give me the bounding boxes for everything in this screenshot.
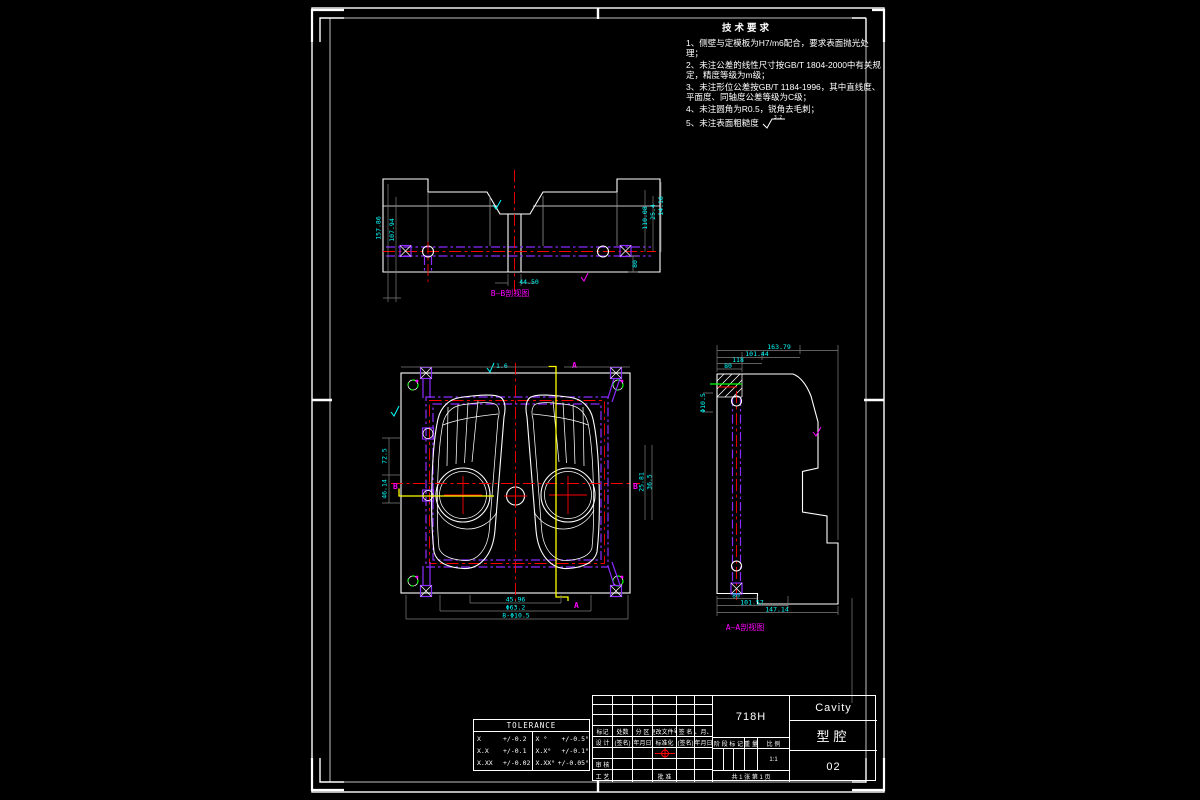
roughness-mark-icon [487, 363, 494, 372]
part-name-cn: 型腔 [790, 721, 877, 751]
dim-text: 14.16 [657, 196, 665, 216]
side-view-label: A—A剖视图 [726, 622, 764, 632]
section-mark: A [572, 361, 577, 370]
revision-header: 分 区 [633, 726, 653, 737]
dim-text: 101.44 [745, 350, 769, 358]
pipe-fitting-icon [423, 428, 434, 439]
dim-text: 157.86 [375, 216, 383, 240]
dim-text: 80 [631, 260, 639, 268]
section-view: 157.86 107.94 110.08 25.4 14.16 80 44.50… [375, 170, 666, 302]
side-view: 163.79 101.44 118 80 Φ10.5 80 101.57 147… [699, 343, 838, 632]
dim-text: 25.4 [649, 204, 657, 220]
stage-label: 阶 段 标 记 [713, 738, 745, 749]
table-row: X.XX+/-0.02 [477, 759, 532, 767]
scale-value: 1:1 [758, 749, 790, 771]
process-label: 工 艺 [593, 770, 613, 782]
tolerance-linear-column: X+/-0.2 X.X+/-0.1 X.XX+/-0.02 [474, 732, 532, 770]
plan-view: A A B B 1.6 72.5 46.14 45.96 Φ63.2 8-Φ10… [381, 361, 853, 703]
revision-header: 签 名 [677, 726, 695, 737]
revision-header: 更改文件号 [653, 726, 677, 737]
tolerance-angular-column: X °+/-0.5° X.X°+/-0.1° X.XX°+/-0.05° [532, 732, 590, 770]
part-name-en: Cavity [790, 696, 877, 721]
svg-text:3.2: 3.2 [774, 115, 782, 121]
roughness-mark-icon [813, 427, 821, 436]
revision-header: 处数 [613, 726, 633, 737]
tech-note: 2、未注公差的线性尺寸按GB/T 1804-2000中有关规定，精度等级为m级； [686, 60, 882, 81]
date-cell: (年月日) [695, 737, 713, 748]
tech-note: 3、未注形位公差按GB/T 1184-1996，其中直线度、平面度、同轴度公差等… [686, 82, 882, 103]
dim-text: Φ10.5 [699, 393, 707, 413]
dim-text: 44.50 [519, 278, 539, 286]
dim-text: Φ63.2 [506, 604, 526, 612]
roughness-mark-icon [581, 273, 588, 281]
hatch-block [717, 374, 742, 397]
table-row: X.X°+/-0.1° [536, 747, 590, 755]
weight-label: 重 量 [745, 738, 758, 749]
checker-label: 审 核 [593, 759, 613, 770]
tolerance-table: TOLERANCE X+/-0.2 X.X+/-0.1 X.XX+/-0.02 … [473, 719, 590, 771]
dim-text: 8-Φ10.5 [502, 612, 529, 620]
title-block: 标记 处数 分 区 更改文件号 签 名 年、月、日 设 计 (签名) (年月日)… [592, 695, 876, 781]
tech-note: 1、侧壁与定模板为H7/m6配合，要求表面抛光处理； [686, 38, 882, 59]
tolerance-table-title: TOLERANCE [474, 720, 589, 732]
sheet-info: 共 1 张 第 1 页 [713, 771, 790, 782]
surface-roughness-icon: 3.2 [761, 115, 787, 129]
revision-header: 标记 [593, 726, 613, 737]
projection-symbol-icon [654, 748, 676, 759]
drawing-number: 02 [790, 751, 877, 782]
scale-label: 比 例 [758, 738, 790, 749]
dim-text: 45.96 [506, 596, 526, 604]
tech-requirements-title: 技术要求 [722, 24, 882, 35]
section-mark: B [393, 482, 398, 491]
dim-text: 101.57 [740, 599, 764, 607]
standardization-label: 标准化 [653, 737, 677, 748]
signature-cell: (签名) [677, 737, 695, 748]
dim-text: 72.5 [381, 448, 389, 464]
dim-text: 36.5 [646, 474, 654, 490]
weight-value [745, 749, 758, 771]
dim-text: 110.08 [641, 206, 649, 230]
material-cell: 718H [713, 696, 790, 738]
drawing-linework: 157.86 107.94 110.08 25.4 14.16 80 44.50… [0, 0, 1200, 800]
tech-requirements: 技术要求 1、侧壁与定模板为H7/m6配合，要求表面抛光处理； 2、未注公差的线… [686, 24, 882, 130]
table-row: X °+/-0.5° [536, 735, 590, 743]
date-cell: (年月日) [633, 737, 653, 748]
dim-text: 163.79 [767, 343, 791, 351]
dim-text: 147.14 [765, 606, 789, 614]
side-outline [717, 374, 838, 604]
dim-text: 80 [732, 592, 740, 600]
dim-text: 118 [732, 356, 744, 364]
dim-text: 46.14 [381, 479, 389, 499]
roughness-value: 1.6 [496, 362, 508, 370]
cad-canvas: 157.86 107.94 110.08 25.4 14.16 80 44.50… [0, 0, 1200, 800]
revision-header: 年、月、日 [695, 726, 713, 737]
table-row: X.X+/-0.1 [477, 747, 532, 755]
section-view-label: B—B剖视图 [491, 288, 529, 298]
tech-note: 5、未注表面粗糙度 3.2 [686, 115, 882, 129]
tech-note: 4、未注圆角为R0.5，锐角去毛刺； [686, 104, 882, 115]
section-mark: A [574, 601, 579, 610]
dim-text: 80 [724, 362, 732, 370]
table-row: X.XX°+/-0.05° [536, 759, 590, 767]
dim-text: 107.94 [388, 218, 396, 242]
cavity-outline-left [432, 395, 505, 569]
signature-cell: (签名) [613, 737, 633, 748]
designer-label: 设 计 [593, 737, 613, 748]
dim-text: 25.81 [638, 472, 646, 492]
table-row: X+/-0.2 [477, 735, 532, 743]
roughness-mark-icon [391, 406, 399, 416]
channel-port [423, 429, 433, 439]
approver-label: 批 准 [653, 770, 677, 782]
